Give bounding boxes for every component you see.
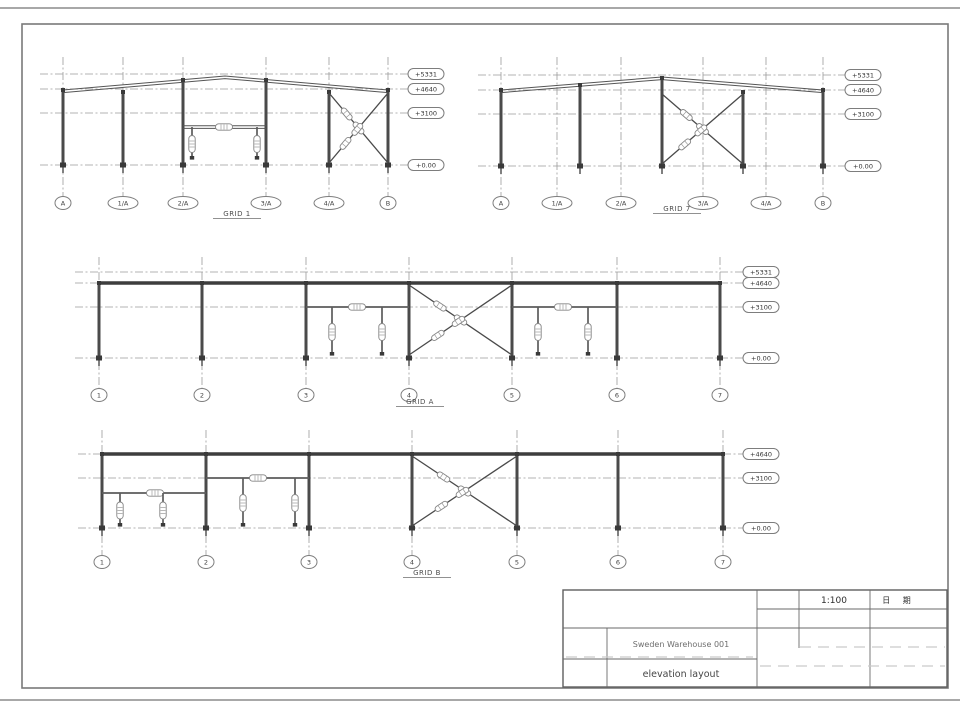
base-plate [120, 163, 126, 168]
column-top-joint [181, 78, 185, 82]
base-plate [498, 164, 504, 169]
elevation-marker-label: +4640 [750, 279, 772, 287]
column-top-joint [100, 452, 104, 456]
member-tag [254, 136, 260, 153]
base-plate [406, 356, 412, 361]
base-plate [615, 526, 621, 531]
base-plate [326, 163, 332, 168]
column-top-joint [204, 452, 208, 456]
column-top-joint [410, 452, 414, 456]
column-top-joint [121, 90, 125, 94]
base-plate [60, 163, 66, 168]
grid-bubble-label: 7 [721, 558, 725, 566]
column-top-joint [721, 452, 725, 456]
grid-bubble-label: 2/A [178, 199, 189, 207]
base-plate [509, 356, 515, 361]
column-top-joint [307, 452, 311, 456]
strut-base [380, 352, 384, 356]
member-tag [240, 495, 246, 512]
base-plate [514, 526, 520, 531]
date-label: 日 期 [882, 596, 916, 605]
column-top-joint [616, 452, 620, 456]
grid-bubble-label: 6 [616, 558, 620, 566]
column-top-joint [660, 76, 664, 80]
drawing-title: elevation layout [643, 669, 720, 680]
grid-bubble-label: 2 [204, 558, 208, 566]
member-tag [379, 324, 385, 341]
view-title: GRID B [413, 569, 441, 577]
column-top-joint [264, 78, 268, 82]
grid-bubble-label: 5 [515, 558, 519, 566]
elevation-marker-label: +4640 [750, 450, 772, 458]
elevation-marker-label: +0.00 [751, 354, 771, 362]
view-title: GRID 1 [223, 210, 250, 218]
grid-bubble-label: 3 [304, 391, 308, 399]
column-top-joint [741, 90, 745, 94]
grid-bubble-label: 2 [200, 391, 204, 399]
grid-bubble-label: 1/A [552, 199, 563, 207]
grid-bubble-label: 1 [100, 558, 104, 566]
strut-base [586, 352, 590, 356]
member-tag [160, 502, 166, 519]
base-plate [96, 356, 102, 361]
elevation-marker-label: +5331 [750, 268, 772, 276]
base-plate [740, 164, 746, 169]
base-plate [180, 163, 186, 168]
base-plate [659, 164, 665, 169]
member-tag [329, 324, 335, 341]
project-name: Sweden Warehouse 001 [633, 640, 729, 649]
column-top-joint [515, 452, 519, 456]
member-tag [189, 136, 195, 153]
strut-base [293, 523, 297, 527]
column-top-joint [97, 281, 101, 285]
strut-base [255, 156, 259, 160]
page-background [0, 0, 960, 707]
column-top-joint [386, 88, 390, 92]
base-plate [385, 163, 391, 168]
column-top-joint [510, 281, 514, 285]
column-top-joint [499, 88, 503, 92]
column-top-joint [304, 281, 308, 285]
member-tag [349, 304, 366, 310]
strut-base [330, 352, 334, 356]
member-tag [117, 502, 123, 519]
column-top-joint [718, 281, 722, 285]
grid-bubble-label: 1/A [118, 199, 129, 207]
base-plate [203, 526, 209, 531]
elevation-marker-label: +0.00 [751, 524, 771, 532]
grid-bubble-label: 2/A [616, 199, 627, 207]
grid-bubble-label: 6 [615, 391, 619, 399]
member-tag [555, 304, 572, 310]
grid-bubble-label: 3/A [698, 199, 709, 207]
grid-bubble-label: 5 [510, 391, 514, 399]
base-plate [303, 356, 309, 361]
member-tag [292, 495, 298, 512]
grid-bubble-label: 4/A [761, 199, 772, 207]
strut-base [190, 156, 194, 160]
base-plate [99, 526, 105, 531]
strut-base [536, 352, 540, 356]
base-plate [306, 526, 312, 531]
grid-bubble-label: A [61, 199, 66, 207]
member-tag [585, 324, 591, 341]
elevation-marker-label: +3100 [415, 109, 437, 117]
drawing-sheet: A1/A2/A3/A4/AB+5331+4640+3100+0.00GRID 1… [0, 0, 960, 707]
elevation-marker-label: +3100 [852, 110, 874, 118]
elevation-marker-label: +5331 [415, 70, 437, 78]
base-plate [199, 356, 205, 361]
member-tag [535, 324, 541, 341]
strut-base [241, 523, 245, 527]
member-tag [147, 490, 164, 496]
column-top-joint [578, 83, 582, 87]
grid-bubble-label: B [821, 199, 825, 207]
grid-bubble-label: B [386, 199, 390, 207]
base-plate [577, 164, 583, 169]
view-title: GRID 7 [663, 205, 690, 213]
strut-base [118, 523, 122, 527]
elevation-marker-label: +5331 [852, 71, 874, 79]
base-plate [717, 356, 723, 361]
column-top-joint [821, 88, 825, 92]
view-title: GRID A [406, 398, 434, 406]
elevation-marker-label: +4640 [415, 85, 437, 93]
base-plate [720, 526, 726, 531]
base-plate [820, 164, 826, 169]
grid-bubble-label: 4 [410, 558, 414, 566]
grid-bubble-label: 4/A [324, 199, 335, 207]
column-top-joint [407, 281, 411, 285]
grid-bubble-label: 1 [97, 391, 101, 399]
grid-bubble-label: 7 [718, 391, 722, 399]
grid-bubble-label: 3 [307, 558, 311, 566]
elevation-marker-label: +0.00 [853, 162, 873, 170]
column-top-joint [615, 281, 619, 285]
strut-base [161, 523, 165, 527]
base-plate [409, 526, 415, 531]
grid-bubble-label: 3/A [261, 199, 272, 207]
column-top-joint [200, 281, 204, 285]
member-tag [250, 475, 267, 481]
member-tag [216, 124, 233, 130]
elevation-marker-label: +0.00 [416, 161, 436, 169]
drawing-scale: 1:100 [821, 596, 847, 606]
column-top-joint [61, 88, 65, 92]
elevation-marker-label: +3100 [750, 303, 772, 311]
elevation-marker-label: +4640 [852, 86, 874, 94]
elevation-marker-label: +3100 [750, 474, 772, 482]
base-plate [614, 356, 620, 361]
base-plate [263, 163, 269, 168]
grid-bubble-label: A [499, 199, 504, 207]
